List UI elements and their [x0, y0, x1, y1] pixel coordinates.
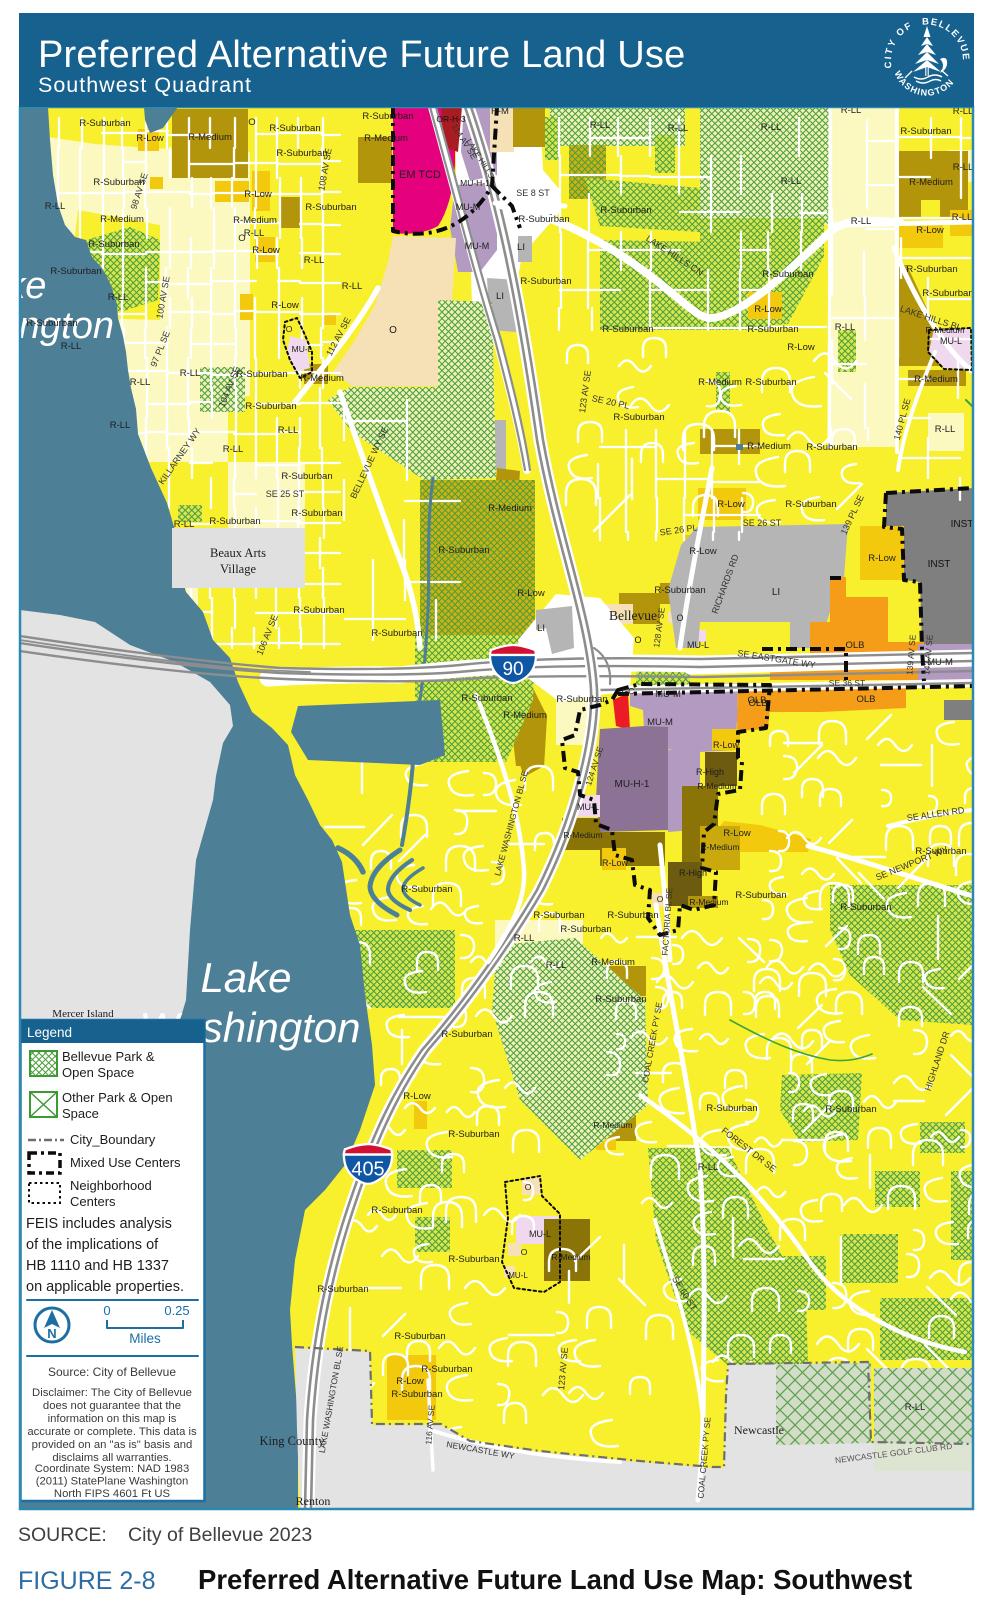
svg-text:R-Low: R-Low — [271, 300, 299, 311]
svg-text:OLB: OLB — [856, 694, 875, 705]
svg-text:R-Suburban: R-Suburban — [595, 994, 646, 1005]
svg-text:R-Suburban: R-Suburban — [305, 202, 356, 213]
svg-text:SE 8 ST: SE 8 ST — [516, 188, 550, 198]
svg-text:90: 90 — [502, 659, 523, 680]
svg-text:R-Suburban: R-Suburban — [825, 1104, 876, 1115]
svg-text:0.25: 0.25 — [164, 1303, 189, 1318]
svg-text:R-LL: R-LL — [304, 255, 325, 266]
svg-text:R-Low: R-Low — [252, 245, 280, 256]
svg-text:R-Suburban: R-Suburban — [602, 324, 653, 335]
svg-text:FIGURE 2-8: FIGURE 2-8 — [18, 1567, 156, 1595]
svg-text:OLB: OLB — [845, 640, 864, 651]
svg-text:N: N — [47, 1326, 56, 1341]
svg-text:Preferred Alternative Future L: Preferred Alternative Future Land Use Ma… — [198, 1564, 912, 1595]
svg-text:R-Suburban: R-Suburban — [448, 1129, 499, 1140]
svg-text:City of Bellevue 2023: City of Bellevue 2023 — [128, 1524, 312, 1546]
svg-text:R-Suburban: R-Suburban — [762, 269, 813, 280]
svg-text:R-Suburban: R-Suburban — [293, 605, 344, 616]
svg-text:R-Low: R-Low — [723, 828, 751, 839]
svg-text:R-Suburban: R-Suburban — [371, 628, 422, 639]
svg-text:MU-L: MU-L — [292, 344, 313, 354]
svg-text:MU-M: MU-M — [456, 202, 481, 212]
svg-text:R-LL: R-LL — [45, 201, 66, 212]
svg-text:LI: LI — [537, 623, 545, 634]
svg-text:R-Low: R-Low — [396, 1376, 424, 1387]
svg-text:Lake: Lake — [200, 954, 291, 1001]
svg-text:R-Suburban: R-Suburban — [560, 924, 611, 935]
svg-text:R-LL: R-LL — [905, 1402, 926, 1413]
svg-text:Centers: Centers — [70, 1194, 116, 1209]
svg-text:R-Low: R-Low — [717, 499, 745, 510]
svg-text:R-Suburban: R-Suburban — [50, 266, 101, 277]
svg-text:Mixed Use Centers: Mixed Use Centers — [70, 1155, 181, 1170]
svg-text:O: O — [238, 233, 245, 244]
svg-text:R-Suburban: R-Suburban — [441, 1029, 492, 1040]
svg-text:O: O — [634, 635, 641, 645]
svg-text:SE 36 ST: SE 36 ST — [829, 678, 865, 688]
svg-text:R-Suburban: R-Suburban — [806, 442, 857, 453]
svg-text:R-Suburban: R-Suburban — [401, 884, 452, 895]
svg-text:R-LL: R-LL — [61, 341, 82, 352]
svg-text:R-Suburban: R-Suburban — [291, 508, 342, 519]
svg-text:R-Suburban: R-Suburban — [747, 324, 798, 335]
svg-text:O: O — [521, 1247, 528, 1257]
svg-text:does not guarantee that the: does not guarantee that the — [43, 1400, 181, 1412]
svg-text:on applicable properties.: on applicable properties. — [26, 1279, 184, 1295]
svg-text:R-LL: R-LL — [590, 120, 611, 131]
svg-text:Village: Village — [220, 562, 256, 576]
svg-text:R-Medium: R-Medium — [364, 133, 408, 144]
svg-text:information on this map is: information on this map is — [48, 1413, 177, 1425]
svg-text:R-Medium: R-Medium — [488, 503, 532, 514]
svg-text:O: O — [676, 613, 683, 623]
svg-text:R-LL: R-LL — [781, 176, 802, 187]
svg-text:405: 405 — [351, 1159, 384, 1181]
svg-text:MU-L: MU-L — [577, 802, 599, 812]
svg-text:R-Low: R-Low — [868, 553, 896, 564]
svg-text:R-Suburban: R-Suburban — [607, 910, 658, 921]
svg-text:Lake: Lake — [0, 265, 46, 307]
svg-text:R-LL: R-LL — [851, 216, 872, 227]
svg-text:O: O — [389, 325, 397, 336]
svg-text:City_Boundary: City_Boundary — [70, 1132, 156, 1147]
svg-text:North FIPS 4601 Ft US: North FIPS 4601 Ft US — [54, 1488, 171, 1500]
svg-text:R-Suburban: R-Suburban — [371, 1205, 422, 1216]
svg-text:Renton: Renton — [296, 1494, 331, 1508]
svg-text:Southwest Quadrant: Southwest Quadrant — [38, 73, 252, 97]
svg-text:Mercer Island: Mercer Island — [52, 1008, 114, 1020]
svg-text:R-Suburban: R-Suburban — [26, 318, 77, 329]
svg-text:R-High: R-High — [679, 868, 707, 878]
svg-text:MU-M: MU-M — [655, 689, 681, 700]
svg-text:R-Medium: R-Medium — [593, 1120, 632, 1130]
svg-text:Bellevue: Bellevue — [609, 608, 657, 623]
svg-text:R-Medium: R-Medium — [563, 830, 602, 840]
svg-text:R-LL: R-LL — [278, 425, 299, 436]
svg-text:Neighborhood: Neighborhood — [70, 1178, 152, 1193]
svg-text:R-Suburban: R-Suburban — [391, 1389, 442, 1400]
svg-text:EM TCD: EM TCD — [399, 169, 441, 181]
svg-text:R-Suburban: R-Suburban — [654, 585, 705, 596]
svg-text:R-Medium: R-Medium — [503, 710, 547, 721]
svg-text:R-Low: R-Low — [689, 546, 717, 557]
svg-text:Newcastle: Newcastle — [734, 1423, 784, 1437]
svg-text:R-Suburban: R-Suburban — [518, 214, 569, 225]
svg-text:R-Suburban: R-Suburban — [209, 516, 260, 527]
svg-text:R-Suburban: R-Suburban — [317, 1284, 368, 1295]
svg-text:INST: INST — [928, 559, 951, 570]
svg-text:OR-H-3: OR-H-3 — [436, 114, 466, 124]
svg-text:R-High: R-High — [696, 767, 724, 777]
svg-text:MU-L: MU-L — [940, 336, 962, 346]
svg-text:R-Medium: R-Medium — [233, 215, 277, 226]
svg-text:Beaux Arts: Beaux Arts — [210, 546, 266, 560]
svg-text:R-Medium: R-Medium — [698, 377, 742, 388]
svg-text:R-Suburban: R-Suburban — [245, 401, 296, 412]
svg-text:R-Medium: R-Medium — [914, 374, 958, 385]
svg-text:R-Low: R-Low — [517, 588, 545, 599]
svg-text:R-Suburban: R-Suburban — [706, 1103, 757, 1114]
svg-text:R-Medium: R-Medium — [100, 214, 144, 225]
svg-text:R-Suburban: R-Suburban — [785, 499, 836, 510]
svg-text:HB 1110 and HB 1337: HB 1110 and HB 1337 — [26, 1258, 169, 1274]
svg-text:R-LL: R-LL — [546, 960, 567, 971]
svg-text:R-LL: R-LL — [698, 1162, 719, 1173]
svg-text:R-Suburban: R-Suburban — [922, 288, 973, 299]
svg-text:R-LL: R-LL — [952, 212, 973, 223]
svg-text:R-LL: R-LL — [174, 519, 195, 530]
svg-text:SE 25 ST: SE 25 ST — [266, 489, 305, 499]
svg-text:R-LL: R-LL — [835, 322, 856, 333]
svg-text:R-Suburban: R-Suburban — [394, 1331, 445, 1342]
svg-text:R-Low: R-Low — [916, 225, 944, 236]
svg-text:LI: LI — [517, 242, 525, 253]
svg-text:R-Suburban: R-Suburban — [840, 902, 891, 913]
svg-text:Legend: Legend — [27, 1025, 72, 1040]
svg-text:R-Suburban: R-Suburban — [613, 412, 664, 423]
svg-text:R-LL: R-LL — [935, 424, 956, 435]
svg-text:R-Low: R-Low — [602, 858, 629, 868]
svg-text:Source: City of Bellevue: Source: City of Bellevue — [48, 1365, 176, 1379]
svg-text:R-Low: R-Low — [136, 133, 164, 144]
svg-text:R-Low: R-Low — [244, 189, 272, 200]
svg-text:MU-L: MU-L — [687, 640, 709, 650]
svg-text:R-Medium: R-Medium — [689, 897, 728, 907]
svg-text:Bellevue Park &: Bellevue Park & — [62, 1049, 155, 1064]
svg-text:R-LL: R-LL — [668, 123, 689, 134]
svg-text:R-LL: R-LL — [223, 444, 244, 455]
svg-text:Coordinate System: NAD 1983: Coordinate System: NAD 1983 — [35, 1463, 189, 1475]
svg-text:R-Medium: R-Medium — [697, 781, 736, 791]
svg-text:R-Suburban: R-Suburban — [520, 276, 571, 287]
svg-text:R-LL: R-LL — [953, 162, 974, 173]
svg-text:R-Suburban: R-Suburban — [438, 545, 489, 556]
svg-text:MU-L: MU-L — [508, 1271, 528, 1280]
svg-text:R-Suburban: R-Suburban — [735, 890, 786, 901]
svg-text:provided on an "as is" basis a: provided on an "as is" basis and — [32, 1439, 193, 1451]
svg-text:R-Low: R-Low — [403, 1091, 431, 1102]
svg-text:Space: Space — [62, 1106, 99, 1121]
svg-text:R-Medium: R-Medium — [591, 957, 635, 968]
svg-text:R-LL: R-LL — [244, 228, 265, 239]
svg-text:R-Suburban: R-Suburban — [600, 205, 651, 216]
svg-text:R-LL: R-LL — [761, 122, 782, 133]
svg-text:OLB: OLB — [748, 698, 767, 709]
svg-text:SOURCE:: SOURCE: — [18, 1524, 107, 1546]
svg-text:R-Suburban: R-Suburban — [461, 693, 512, 704]
svg-text:R-Suburban: R-Suburban — [79, 118, 130, 129]
svg-text:R-Suburban: R-Suburban — [533, 910, 584, 921]
svg-text:R-Low: R-Low — [787, 342, 815, 353]
svg-text:O: O — [525, 1182, 532, 1192]
svg-text:R-Suburban: R-Suburban — [362, 111, 413, 122]
svg-text:R-Suburban: R-Suburban — [236, 369, 287, 380]
svg-text:R-Suburban: R-Suburban — [276, 148, 327, 159]
svg-text:MU-M: MU-M — [465, 241, 490, 251]
svg-text:R-LL: R-LL — [130, 377, 151, 388]
svg-text:of the implications of: of the implications of — [26, 1237, 159, 1253]
svg-text:R-LL: R-LL — [342, 281, 363, 292]
svg-text:R-LL: R-LL — [110, 420, 131, 431]
svg-text:R-Suburban: R-Suburban — [906, 264, 957, 275]
svg-text:Miles: Miles — [129, 1331, 161, 1346]
svg-text:R-Medium: R-Medium — [300, 373, 344, 384]
svg-text:R-Suburban: R-Suburban — [269, 123, 320, 134]
svg-text:Other Park & Open: Other Park & Open — [62, 1090, 173, 1105]
svg-text:R-Suburban: R-Suburban — [421, 1364, 472, 1375]
svg-text:MU-L: MU-L — [529, 1229, 551, 1239]
svg-text:MU-H-1: MU-H-1 — [615, 779, 650, 790]
svg-text:R-Medium: R-Medium — [747, 441, 791, 452]
svg-text:R-LL: R-LL — [108, 292, 129, 303]
svg-text:LI: LI — [496, 291, 504, 302]
svg-text:R-Medium: R-Medium — [551, 1252, 590, 1262]
svg-text:MU-M: MU-M — [647, 717, 673, 728]
svg-text:R-Suburban: R-Suburban — [281, 471, 332, 482]
svg-text:GC: GC — [622, 686, 635, 696]
svg-text:R-LL: R-LL — [514, 933, 535, 944]
svg-text:R-Suburban: R-Suburban — [88, 239, 139, 250]
svg-text:R-Suburban: R-Suburban — [900, 126, 951, 137]
svg-text:INST: INST — [951, 519, 974, 530]
svg-text:SE 26 ST: SE 26 ST — [743, 518, 782, 528]
svg-text:LI: LI — [772, 587, 780, 598]
svg-text:King County: King County — [260, 1434, 326, 1448]
svg-text:O: O — [286, 324, 293, 334]
svg-text:0: 0 — [103, 1303, 110, 1318]
svg-text:MU-H-1: MU-H-1 — [460, 178, 490, 188]
svg-text:R-Suburban: R-Suburban — [556, 694, 607, 705]
svg-text:R-Low: R-Low — [713, 740, 740, 750]
svg-text:R-Medium: R-Medium — [909, 177, 953, 188]
svg-text:R-Medium: R-Medium — [700, 842, 739, 852]
svg-text:R-LL: R-LL — [180, 368, 201, 379]
svg-text:Preferred Alternative Future L: Preferred Alternative Future Land Use — [38, 34, 685, 76]
svg-text:Disclaimer: The City of Bellev: Disclaimer: The City of Bellevue — [32, 1387, 192, 1399]
svg-text:R-Medium: R-Medium — [188, 132, 232, 143]
svg-text:accurate or complete. This dat: accurate or complete. This data is — [27, 1426, 197, 1438]
svg-text:R-Low: R-Low — [754, 304, 782, 315]
svg-text:R-Suburban: R-Suburban — [448, 1254, 499, 1265]
svg-text:FEIS includes analysis: FEIS includes analysis — [26, 1216, 172, 1232]
svg-text:Open Space: Open Space — [62, 1065, 134, 1080]
svg-text:O: O — [248, 117, 255, 128]
svg-text:R-Suburban: R-Suburban — [745, 377, 796, 388]
svg-text:(2011) StatePlane Washington: (2011) StatePlane Washington — [36, 1476, 189, 1488]
